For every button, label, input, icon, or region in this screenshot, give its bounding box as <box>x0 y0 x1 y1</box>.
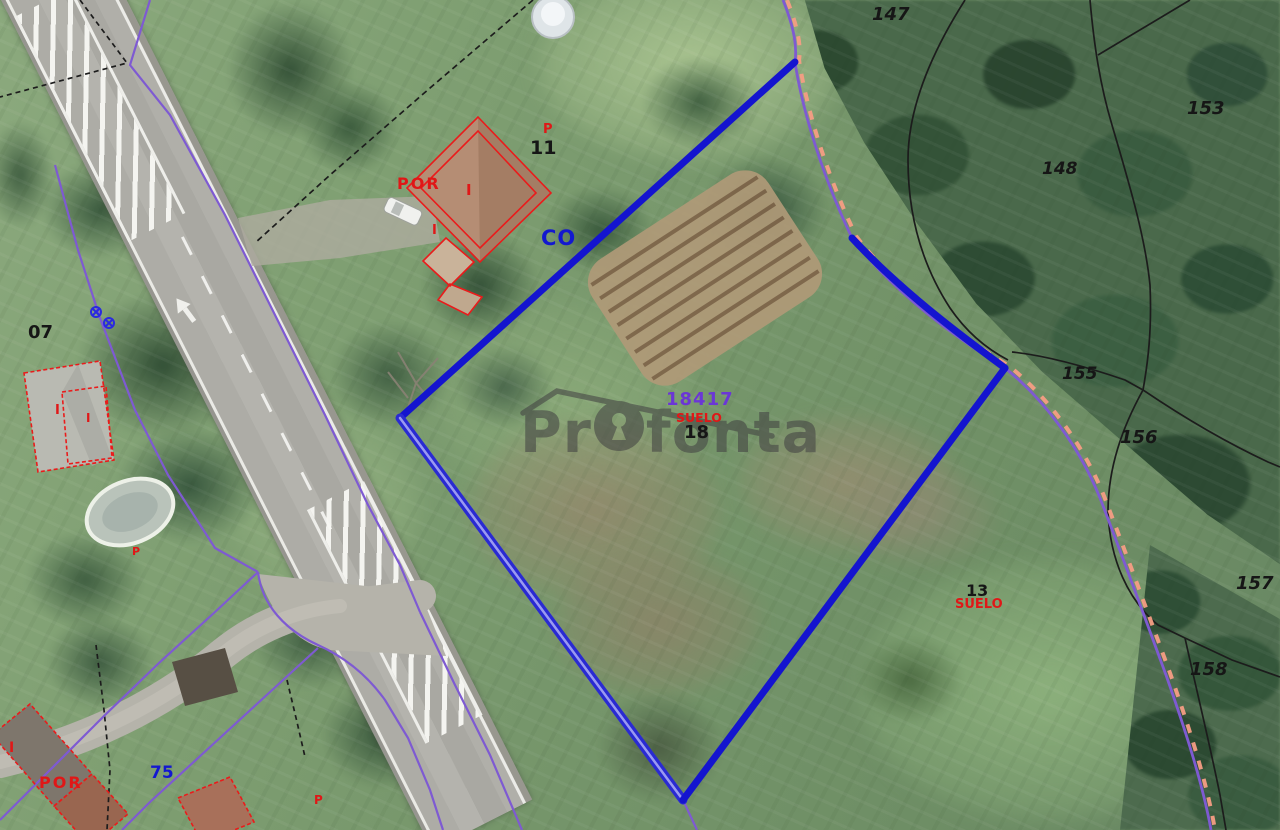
parcel-boundary-lines <box>0 0 1280 830</box>
cadastral-overlay <box>0 0 1280 830</box>
parcel-number-155: 155 <box>1062 366 1098 383</box>
building-code-por-top: POR <box>397 176 441 192</box>
building-code-i-top2: I <box>432 224 437 237</box>
building-code-p-pool: P <box>132 546 140 557</box>
building-code-p-top: P <box>543 123 553 136</box>
parcel-number-158: 158 <box>1190 661 1228 679</box>
parcel-number-148: 148 <box>1042 161 1078 178</box>
map-canvas[interactable]: CO 18417 SUELO 18 11 P POR I I 07 I I P … <box>0 0 1280 830</box>
building-code-por-bottom: POR <box>39 775 83 791</box>
parcel-number-75: 75 <box>150 765 174 782</box>
parcel-number-11: 11 <box>530 139 556 158</box>
building-code-i-left: I <box>55 404 60 417</box>
parcel-number-147: 147 <box>872 6 910 24</box>
boundary-pink-dashed-line <box>783 0 1215 830</box>
garden-plot <box>577 160 833 397</box>
building-code-i-bottom: I <box>9 741 14 755</box>
parcel-number-156: 156 <box>1120 429 1158 447</box>
suelo-label-right: SUELO <box>955 598 1003 611</box>
parcel-number-18: 18 <box>684 424 709 442</box>
building-code-i-top: I <box>466 183 472 198</box>
parcel-label-co: CO <box>541 228 576 249</box>
building-code-p-bottom: P <box>314 794 323 806</box>
cadastral-ref-violet: 18417 <box>666 391 734 409</box>
parcel-number-157: 157 <box>1236 575 1274 593</box>
parcel-number-07: 07 <box>28 324 53 342</box>
parcel-number-153: 153 <box>1187 100 1225 118</box>
building-code-i-left2: I <box>86 412 90 424</box>
